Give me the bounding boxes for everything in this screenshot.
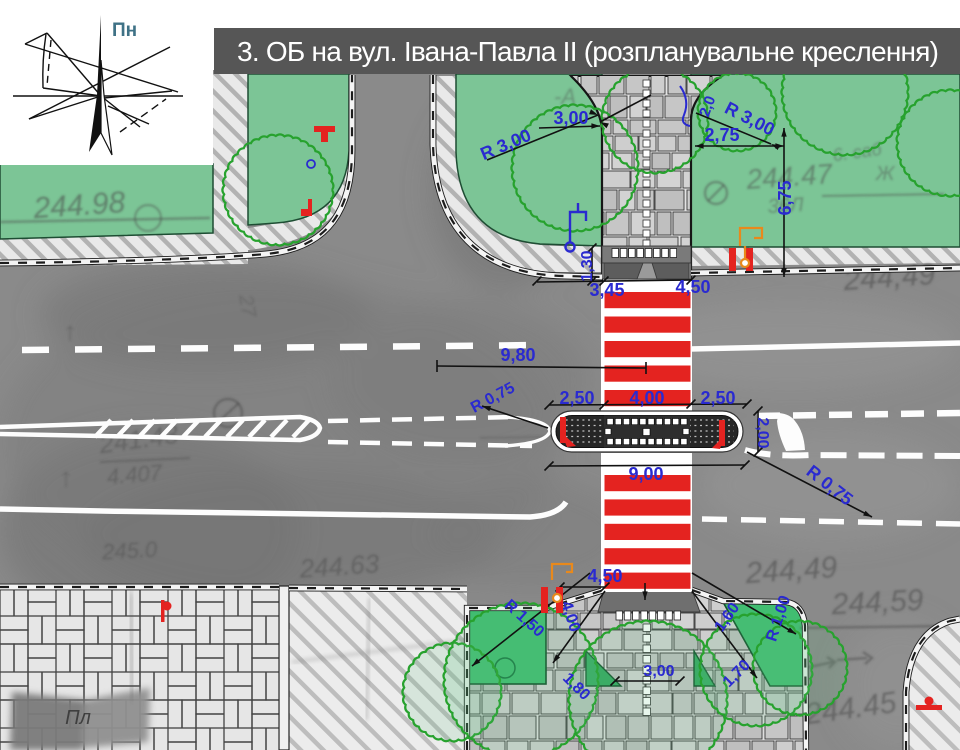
- svg-text:3,00: 3,00: [643, 663, 674, 680]
- svg-text:244.63: 244.63: [298, 548, 381, 584]
- svg-text:2,75: 2,75: [704, 125, 739, 145]
- svg-text:4,50: 4,50: [587, 566, 622, 586]
- svg-text:27: 27: [234, 292, 260, 320]
- svg-text:6,75: 6,75: [775, 180, 795, 215]
- svg-text:4,00: 4,00: [629, 388, 664, 408]
- svg-text:4.407: 4.407: [106, 460, 164, 490]
- svg-text:3. ОБ на вул. Івана-Павла II (: 3. ОБ на вул. Івана-Павла II (розпланува…: [237, 36, 939, 67]
- svg-text:↑: ↑: [60, 462, 73, 492]
- svg-text:2,50: 2,50: [559, 388, 594, 408]
- svg-text:9,80: 9,80: [500, 345, 535, 365]
- svg-text:2,50: 2,50: [700, 388, 735, 408]
- svg-text:244,49: 244,49: [841, 258, 936, 297]
- svg-text:3,45: 3,45: [589, 280, 624, 300]
- svg-text:2,00: 2,00: [754, 417, 771, 448]
- svg-text:244,49: 244,49: [743, 551, 838, 590]
- svg-text:↑: ↑: [64, 316, 77, 346]
- svg-text:245.0: 245.0: [100, 537, 158, 565]
- svg-text:Пн: Пн: [112, 20, 137, 41]
- svg-text:1,30: 1,30: [579, 250, 596, 281]
- svg-text:9,00: 9,00: [628, 464, 663, 484]
- svg-text:Ж: Ж: [875, 163, 896, 185]
- svg-text:3,00: 3,00: [553, 108, 588, 128]
- svg-text:244,59: 244,59: [830, 584, 925, 622]
- svg-text:Пл: Пл: [65, 707, 91, 729]
- svg-text:4,50: 4,50: [675, 277, 710, 297]
